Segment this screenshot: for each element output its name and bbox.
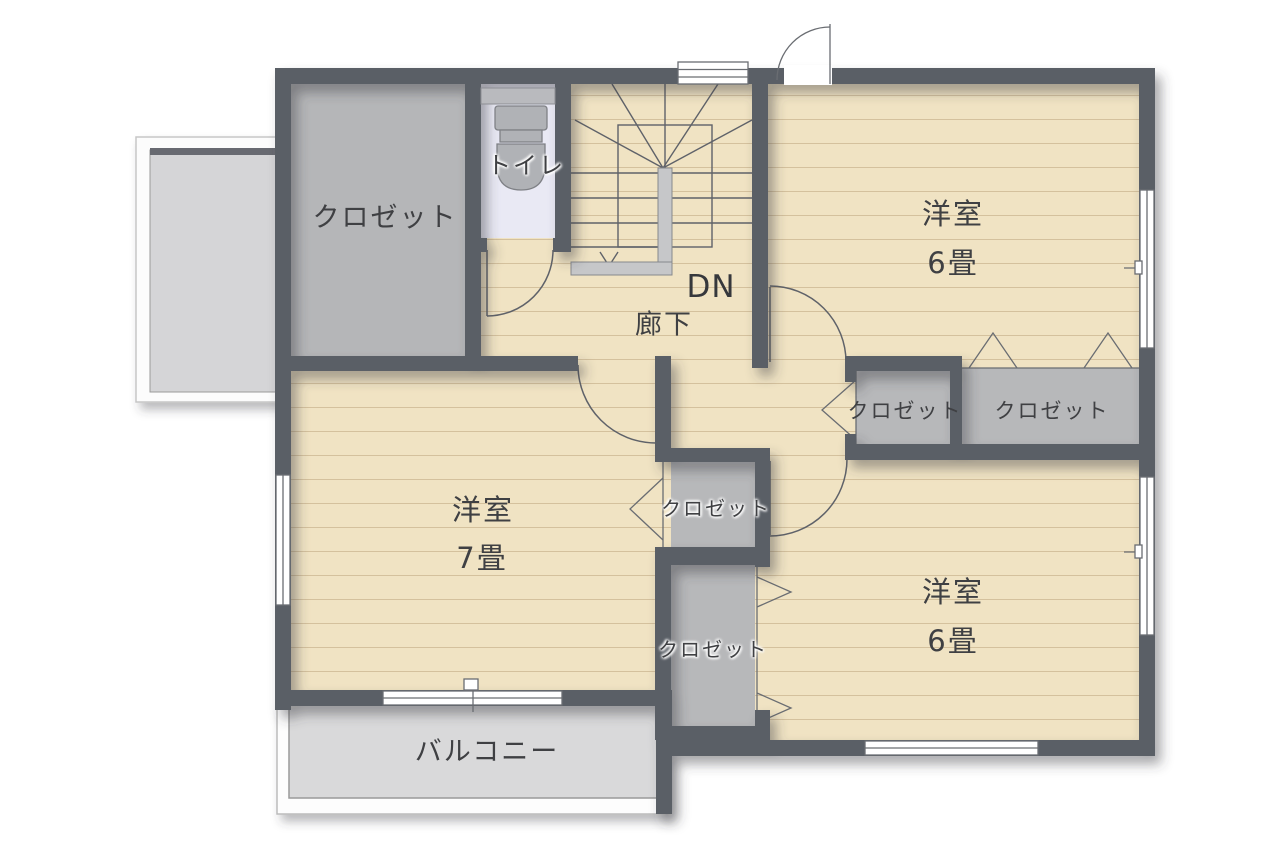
label-bedroom-bottom-right-area: 6畳 [927,618,978,660]
label-closet-hall-right: クロゼット [995,395,1110,425]
window-bottom-right-room [865,741,1038,755]
label-hallway: 廊下 [635,303,693,342]
label-closet-hall-left: クロゼット [848,395,963,425]
label-bedroom-top-right-area: 6畳 [927,240,978,282]
floor-plan-drawing [0,0,1279,861]
label-stairs-down: DN [686,269,735,305]
window-top-stairs [678,62,748,84]
label-bedroom-left-area: 7畳 [456,535,507,577]
label-toilet: トイレ [487,146,565,181]
roof-over-entry [136,137,283,402]
label-bedroom-top-right: 洋室 [922,191,984,233]
label-bedroom-bottom-right: 洋室 [922,569,984,611]
window-left-room [276,475,290,605]
floor-plan: クロゼット トイレ DN 廊下 洋室 6畳 クロゼット クロゼット 洋室 7畳 … [0,0,1279,861]
label-closet-top-left: クロゼット [313,196,458,235]
label-bedroom-left: 洋室 [452,487,514,529]
label-balcony: バルコニー [415,730,559,769]
entry-door-top [777,24,832,85]
label-closet-center-lower: クロゼット [658,634,768,663]
label-closet-center-upper: クロゼット [661,493,771,522]
